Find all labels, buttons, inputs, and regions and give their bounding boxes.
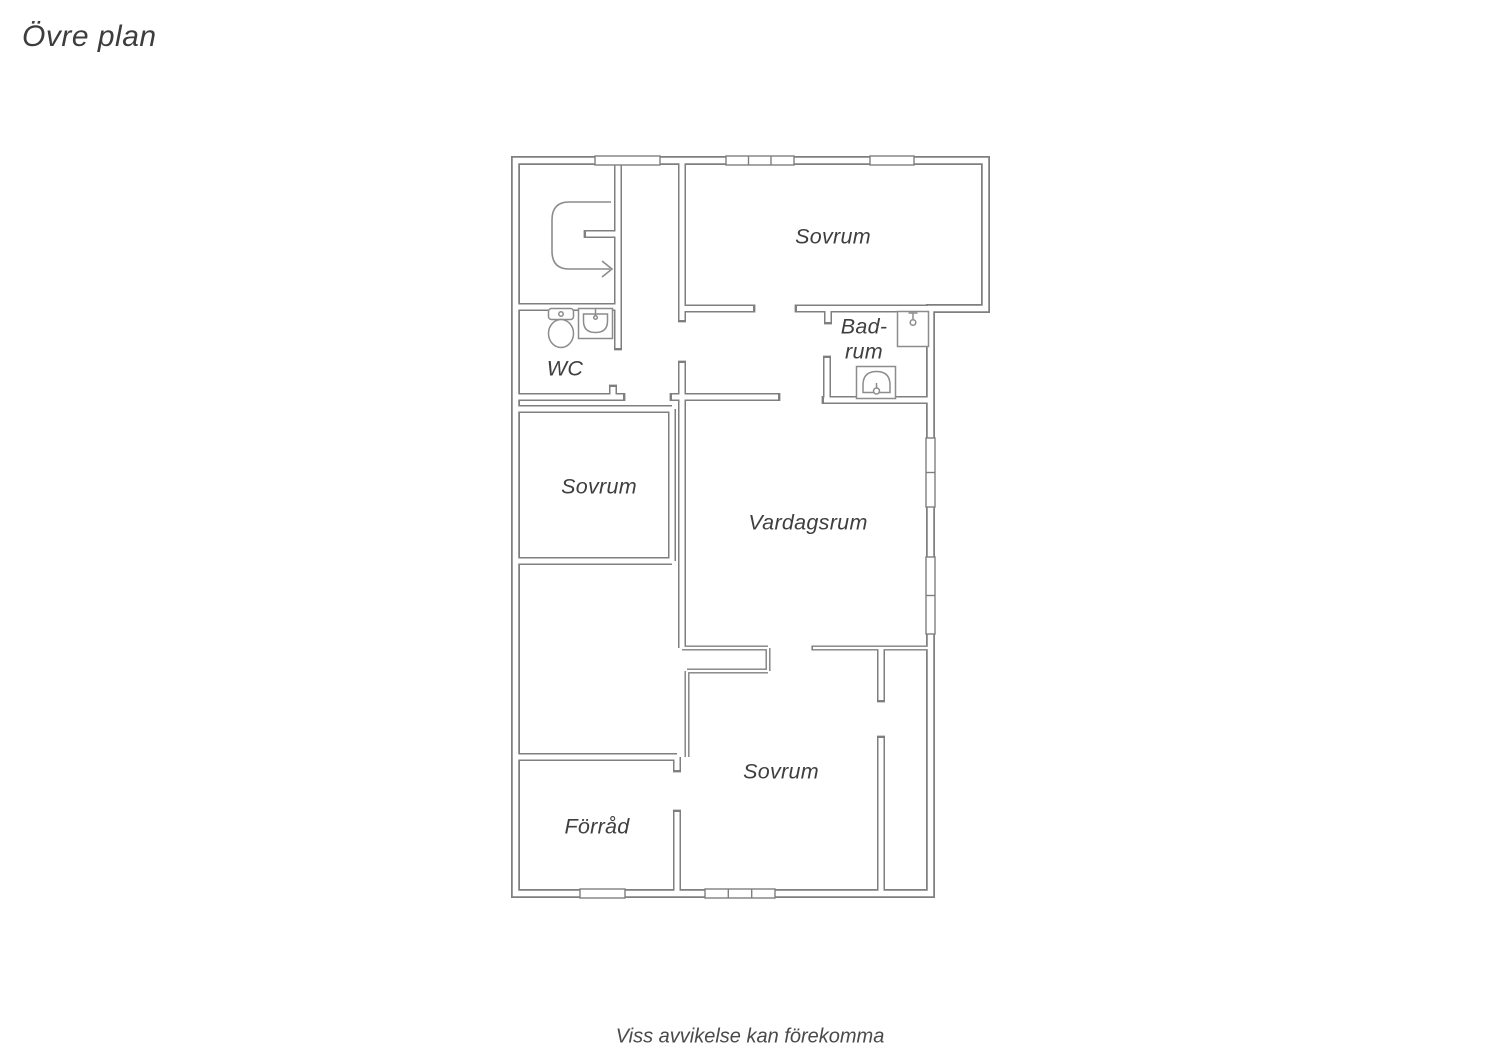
room-label-forrad: Förråd — [564, 815, 629, 840]
room-label-sovrum-mid: Sovrum — [561, 475, 637, 500]
shower-icon — [910, 320, 916, 326]
room-label-wc: WC — [547, 357, 583, 382]
toilet-icon — [549, 320, 574, 348]
window — [870, 156, 914, 165]
disclaimer-text: Viss avvikelse kan förekomma — [616, 1026, 885, 1049]
window — [580, 889, 625, 898]
room-label-sovrum-bottom: Sovrum — [743, 760, 819, 785]
wc-sink-icon — [594, 316, 598, 320]
room-label-badrum: Bad- rum — [841, 314, 888, 363]
window — [726, 156, 794, 165]
bathroom-sink-icon — [874, 388, 880, 394]
window — [705, 889, 775, 898]
room-label-vardagsrum: Vardagsrum — [748, 511, 867, 536]
room-label-sovrum-top: Sovrum — [795, 225, 871, 250]
toilet-icon — [559, 312, 563, 316]
page: { "page": { "title": "Övre plan", "discl… — [0, 0, 1500, 1060]
window — [595, 156, 660, 165]
